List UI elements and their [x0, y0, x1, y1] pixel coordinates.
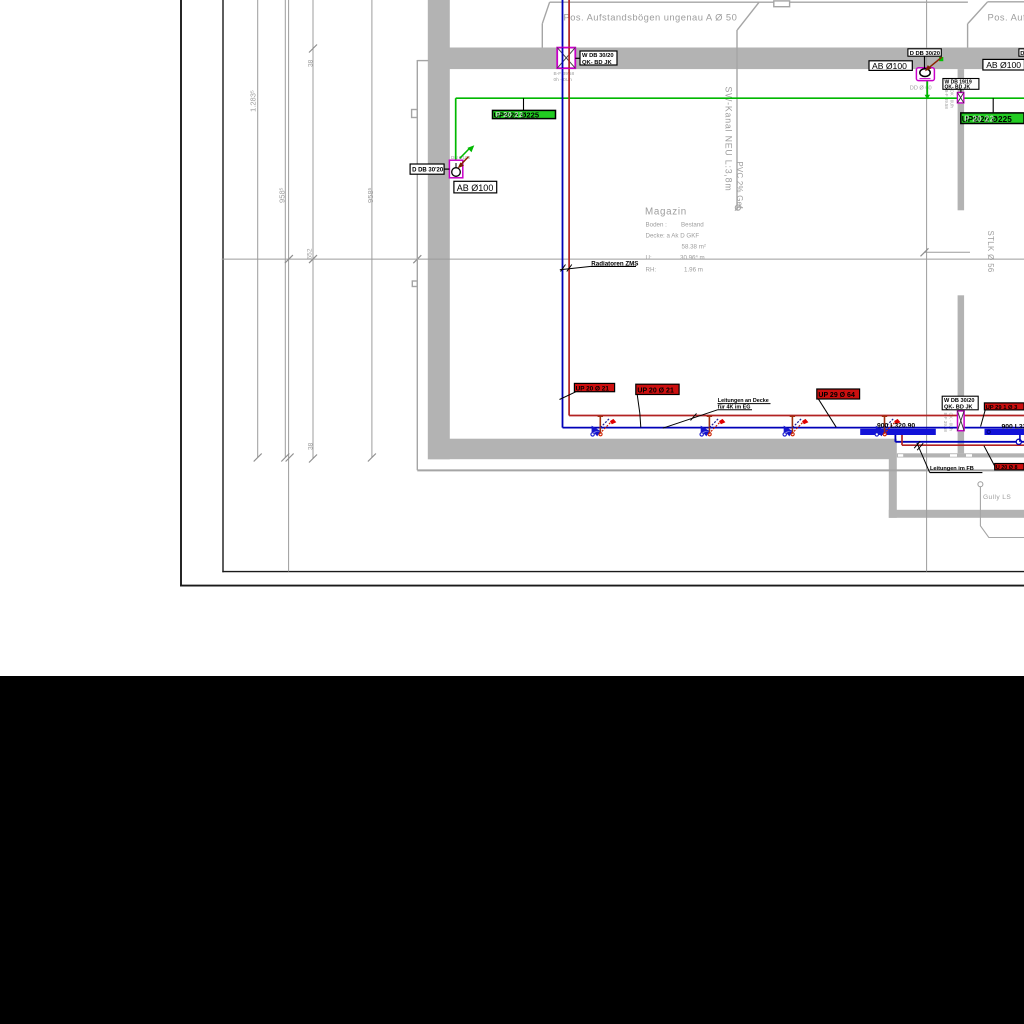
- svg-text:Bestand: Bestand: [681, 222, 704, 229]
- svg-text:D DB 30/20: D DB 30/20: [910, 51, 940, 57]
- svg-text:AB Ø100: AB Ø100: [872, 61, 907, 71]
- svg-text:UP 20 Ø 21: UP 20 Ø 21: [637, 387, 674, 394]
- svg-text:Decke: a Ak D GKF: Decke: a Ak D GKF: [646, 233, 700, 240]
- svg-text:W DB 30/20: W DB 30/20: [944, 398, 974, 404]
- svg-text:900 L320.90: 900 L320.90: [877, 423, 915, 430]
- svg-text:W DB 30/20: W DB 30/20: [582, 53, 614, 59]
- svg-text:UP 20 Ø 21: UP 20 Ø 21: [576, 385, 610, 392]
- svg-text:P 20 22: P 20 22: [964, 115, 994, 124]
- svg-text:D: D: [1020, 51, 1024, 57]
- svg-text:38: 38: [308, 59, 315, 67]
- svg-text:U:: U:: [646, 254, 652, 261]
- svg-text:B-F 39.58: B-F 39.58: [944, 90, 949, 110]
- svg-text:38: 38: [308, 442, 315, 450]
- svg-text:DD Ø 60: DD Ø 60: [910, 86, 932, 92]
- svg-text:U 20 Ø 8: U 20 Ø 8: [996, 465, 1018, 471]
- svg-text:SW-Kanal NEU L:3,8m: SW-Kanal NEU L:3,8m: [724, 87, 734, 192]
- svg-text:UP 29 1 Ø 3: UP 29 1 Ø 3: [986, 405, 1019, 411]
- svg-text:D DB 30'20: D DB 30'20: [412, 168, 444, 174]
- svg-text:B-F 39'58: B-F 39'58: [554, 71, 575, 77]
- svg-text:Magazin: Magazin: [645, 207, 687, 218]
- svg-text:QK- BD JK: QK- BD JK: [582, 60, 612, 66]
- svg-text:652: 652: [307, 248, 314, 259]
- svg-text:QK- BD JK: QK- BD JK: [945, 85, 971, 91]
- svg-text:QK- BD JK: QK- BD JK: [944, 405, 973, 411]
- svg-text:900 L32: 900 L32: [1002, 423, 1024, 430]
- svg-text:1.2835: 1.2835: [249, 90, 258, 112]
- svg-text:Gully LS: Gully LS: [983, 494, 1011, 501]
- svg-text:Pos. Auf: Pos. Auf: [988, 11, 1024, 22]
- svg-text:AB Ø100: AB Ø100: [986, 60, 1021, 70]
- svg-text:RH:: RH:: [646, 266, 657, 273]
- svg-text:STLK Ø 56: STLK Ø 56: [986, 231, 995, 273]
- svg-text:1.96 m: 1.96 m: [684, 266, 703, 273]
- svg-text:UP 29 Ø 64: UP 29 Ø 64: [818, 392, 855, 399]
- svg-text:58.38 m2: 58.38 m2: [682, 242, 707, 250]
- svg-text:AB Ø100: AB Ø100: [457, 183, 494, 193]
- svg-text:30.964 m: 30.964 m: [680, 253, 705, 261]
- svg-text:Leitungen im FB: Leitungen im FB: [930, 466, 974, 472]
- svg-text:P 20 22: P 20 22: [496, 110, 523, 119]
- svg-text:Pos. Aufstandsbögen ungenau A: Pos. Aufstandsbögen ungenau A Ø 50: [564, 12, 738, 23]
- svg-text:Boden :: Boden :: [646, 222, 668, 229]
- svg-text:PVC 2% Gef.: PVC 2% Gef.: [735, 162, 744, 212]
